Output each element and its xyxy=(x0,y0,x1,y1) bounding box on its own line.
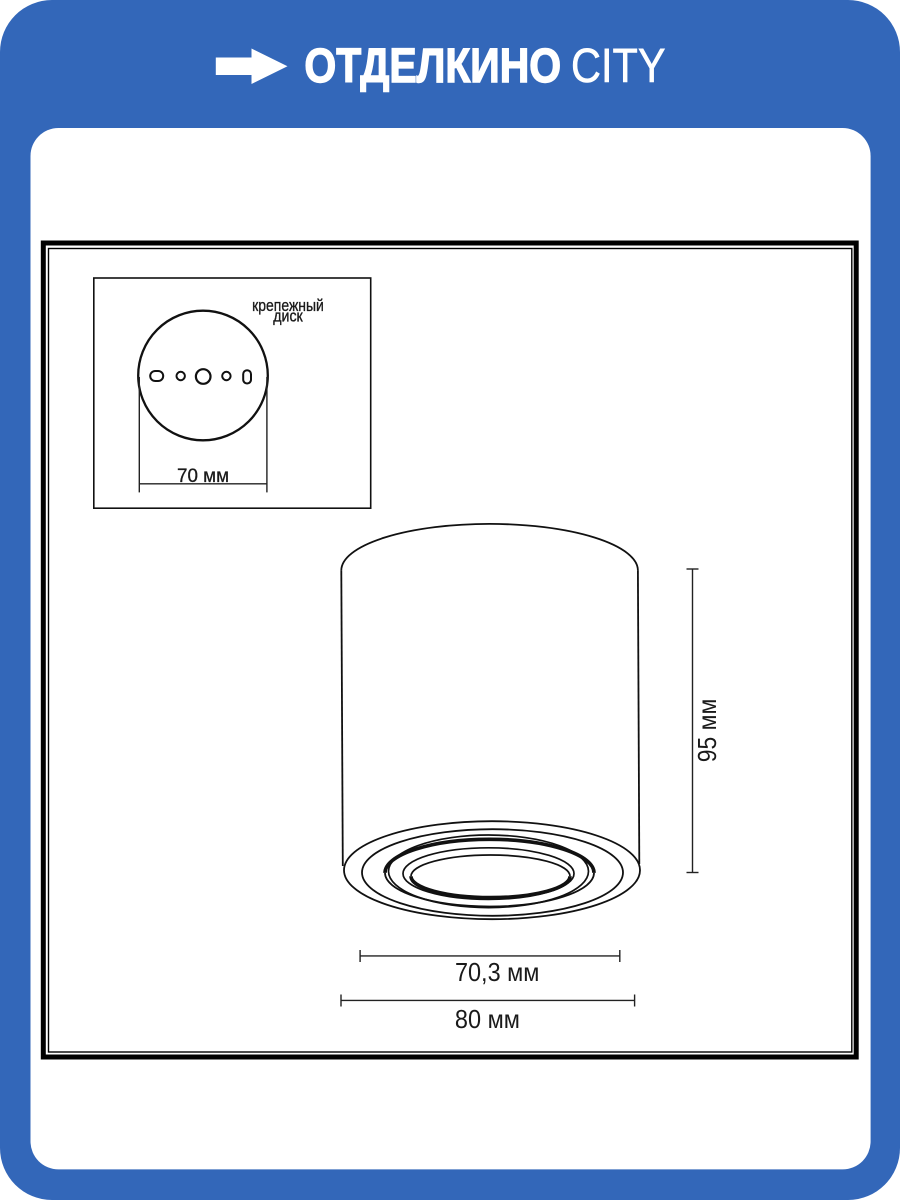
svg-text:CITY: CITY xyxy=(571,40,666,93)
svg-text:ОТДЕЛКИНО: ОТДЕЛКИНО xyxy=(304,40,561,93)
svg-text:80 мм: 80 мм xyxy=(455,1004,520,1034)
svg-text:диск: диск xyxy=(273,307,303,325)
svg-text:70,3 мм: 70,3 мм xyxy=(455,957,540,987)
svg-text:95 мм: 95 мм xyxy=(692,699,722,763)
svg-text:70 мм: 70 мм xyxy=(177,466,229,487)
